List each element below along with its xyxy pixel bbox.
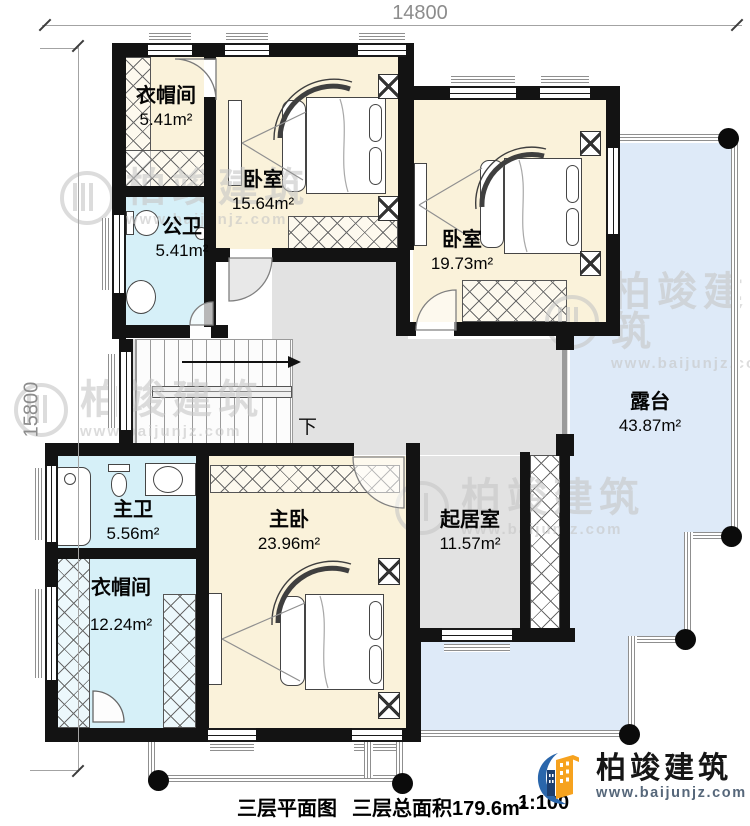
bed-pillow xyxy=(369,601,382,640)
porch-railing xyxy=(396,742,405,776)
room-name: 起居室 xyxy=(440,509,500,531)
column-dot xyxy=(721,526,742,547)
sink xyxy=(153,466,183,493)
porch-railing xyxy=(364,742,373,778)
watermark-text: 柏竣建筑 xyxy=(611,272,750,352)
room-name: 主卧 xyxy=(269,509,309,531)
window xyxy=(450,86,516,100)
wall-segment xyxy=(112,186,204,197)
dimension-label-top: 14800 xyxy=(360,2,480,25)
floor-plan-canvas: 柏竣建筑 www.baijunjz.com 柏竣建筑 www.baijunjz.… xyxy=(0,0,750,826)
window-sill xyxy=(354,744,400,752)
stair-down-label: 下 xyxy=(298,412,317,439)
watermark-url: www.baijunjz.com xyxy=(611,355,750,372)
closet-hatch xyxy=(210,465,400,493)
room-name: 露台 xyxy=(630,391,670,413)
window-sill xyxy=(35,468,43,540)
terrace-railing xyxy=(421,730,635,739)
column-dot xyxy=(148,770,169,791)
bed-pillow xyxy=(369,645,382,684)
window xyxy=(148,43,192,57)
room-label-bedroom-right: 卧室 19.73m² xyxy=(398,228,526,274)
brand-logo-icon xyxy=(532,748,588,806)
window xyxy=(225,43,269,57)
window-sill xyxy=(149,33,191,42)
window xyxy=(358,43,406,57)
window-sill xyxy=(444,644,510,652)
room-name: 主卫 xyxy=(113,499,153,521)
wall-segment xyxy=(112,325,190,338)
dimension-ext-line xyxy=(30,770,78,771)
brand-website: www.baijunjz.com xyxy=(596,785,747,801)
terrace-railing xyxy=(628,636,637,738)
dresser xyxy=(208,593,222,685)
window-sill xyxy=(102,218,110,290)
wall-segment xyxy=(606,128,620,148)
window xyxy=(119,352,133,430)
sliding-door-leaf xyxy=(562,350,567,434)
wall-segment xyxy=(196,443,209,742)
door-arc xyxy=(229,258,272,301)
wall-segment xyxy=(398,43,414,250)
dimension-line-left xyxy=(78,46,79,772)
room-area: 15.64m² xyxy=(196,193,330,214)
window-sill xyxy=(451,76,515,85)
column-dot xyxy=(619,724,640,745)
room-label-bath-master: 主卫 5.56m² xyxy=(74,498,192,544)
window xyxy=(540,86,590,100)
room-area: 23.96m² xyxy=(228,533,350,554)
room-label-cloakroom-top: 衣帽间 5.41m² xyxy=(110,84,222,130)
brand-name: 柏竣建筑 xyxy=(596,753,747,785)
nightstand xyxy=(580,131,601,156)
room-area: 5.56m² xyxy=(74,523,192,544)
wall-segment xyxy=(45,548,208,559)
plan-title: 三层平面图 xyxy=(237,792,337,821)
nightstand xyxy=(378,692,400,719)
window-sill xyxy=(108,354,116,428)
wall-segment xyxy=(204,43,216,60)
room-area: 43.87m² xyxy=(588,415,712,436)
room-label-bedroom-top: 卧室 15.64m² xyxy=(196,168,330,214)
room-label-bedroom-master: 主卧 23.96m² xyxy=(228,508,350,554)
bathtub-faucet xyxy=(64,473,76,485)
wall-segment xyxy=(560,452,570,642)
wall-segment xyxy=(454,322,620,336)
dimension-label-left: 15800 xyxy=(21,372,44,448)
room-label-living: 起居室 11.57m² xyxy=(410,508,530,554)
bed-pillow xyxy=(566,208,579,246)
watermark-logo-icon xyxy=(60,171,114,225)
room-name: 卧室 xyxy=(442,229,482,251)
wall-segment xyxy=(196,443,354,456)
wall-segment xyxy=(211,325,228,338)
total-area-text: 三层总面积179.6m² xyxy=(352,792,527,821)
bed-pillow xyxy=(369,104,382,142)
window-sill xyxy=(359,33,405,42)
bed-pillow xyxy=(566,165,579,203)
sink xyxy=(126,280,156,314)
window-sill xyxy=(35,589,43,678)
window xyxy=(208,728,256,742)
room-label-bath-public: 公卫 5.41m² xyxy=(124,215,240,261)
room-fill-terrace-c xyxy=(570,536,688,642)
watermark: 柏竣建筑 www.baijunjz.com xyxy=(14,380,264,440)
bed-side-cabinet xyxy=(280,596,305,686)
room-name: 卧室 xyxy=(243,169,283,191)
window-sill xyxy=(226,33,268,42)
terrace-railing xyxy=(684,532,693,642)
brand-logo: 柏竣建筑 www.baijunjz.com xyxy=(532,748,747,806)
column-dot xyxy=(392,773,413,794)
room-area: 5.41m² xyxy=(124,240,240,261)
room-area: 5.41m² xyxy=(110,109,222,130)
window xyxy=(442,628,512,642)
window xyxy=(45,587,58,680)
room-name: 衣帽间 xyxy=(91,577,151,599)
room-fill-hall-notch xyxy=(272,260,408,340)
window-sill xyxy=(210,744,254,752)
bed-pillow xyxy=(369,147,382,185)
room-label-terrace: 露台 43.87m² xyxy=(588,390,712,436)
wall-segment xyxy=(406,322,416,336)
wall-segment xyxy=(556,328,574,350)
column-dot xyxy=(675,629,696,650)
column-dot xyxy=(718,128,739,149)
room-fill-terrace-d xyxy=(421,642,630,732)
window xyxy=(45,466,58,542)
room-name: 公卫 xyxy=(162,216,202,238)
room-area: 19.73m² xyxy=(398,253,526,274)
window-sill xyxy=(541,76,589,85)
window xyxy=(606,148,620,234)
nightstand xyxy=(378,558,400,585)
room-name: 衣帽间 xyxy=(136,85,196,107)
wall-segment xyxy=(272,248,400,262)
wall-segment xyxy=(406,628,421,742)
window xyxy=(352,728,402,742)
toilet-bowl xyxy=(111,473,127,497)
dimension-line-top xyxy=(42,25,742,26)
nightstand xyxy=(378,196,399,221)
terrace-railing xyxy=(731,134,740,541)
room-area: 11.57m² xyxy=(410,533,530,554)
toilet-tank xyxy=(108,464,130,472)
nightstand xyxy=(378,74,399,99)
wall-segment xyxy=(45,443,208,456)
